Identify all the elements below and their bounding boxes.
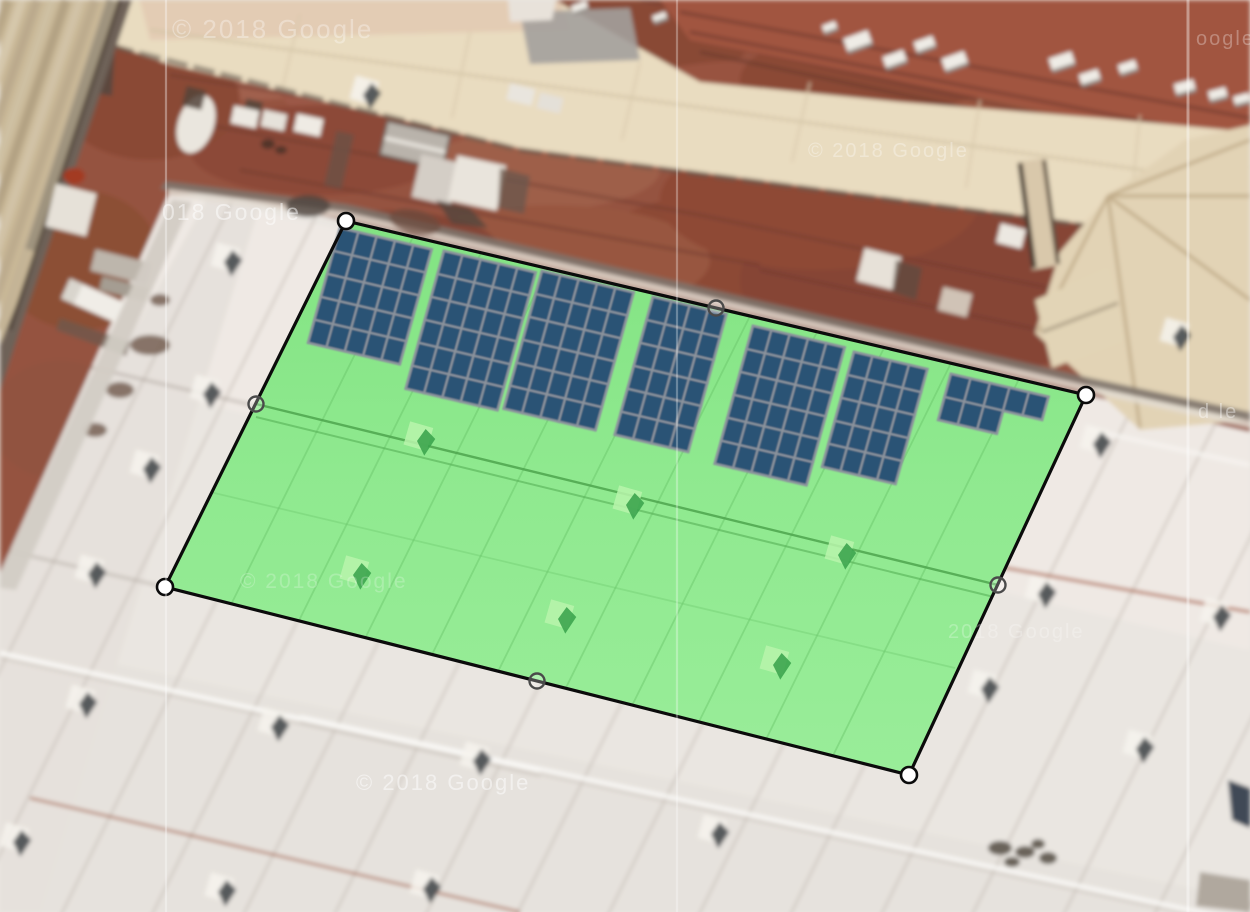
svg-text:© 2018 Google: © 2018 Google [172,14,373,44]
svg-text:2018 Google: 2018 Google [948,621,1085,643]
svg-text:d le: d le [1198,401,1238,423]
svg-text:© 2018 Google: © 2018 Google [356,770,530,795]
svg-text:oogle: oogle [1196,28,1250,50]
svg-text:© 2018 Google: © 2018 Google [808,140,969,162]
svg-text:018 Google: 018 Google [162,199,301,225]
svg-text:© 2018 Google: © 2018 Google [240,570,408,593]
